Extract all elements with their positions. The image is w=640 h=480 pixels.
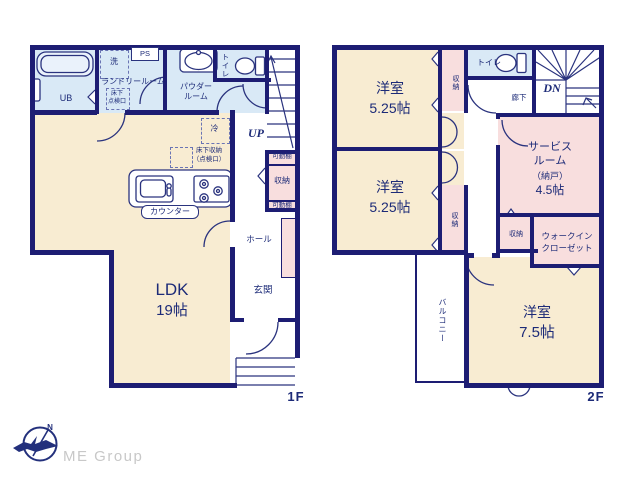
label-west3-size: 7.5帖	[487, 324, 587, 342]
label-west1-closet: 収納	[446, 67, 459, 99]
label-wic-l1: ウォークイン	[541, 231, 592, 241]
label-closet-small: 収納	[498, 231, 534, 239]
compass-north-label: N	[44, 423, 56, 433]
label-dn: DN	[540, 81, 564, 95]
label-toilet-2f: トイレ	[466, 58, 512, 68]
floorplan-canvas: PS UB ランドリールーム 洗 床下点検口 パウダールーム トイレ 冷 床下収…	[0, 0, 640, 480]
label-west2-size: 5.25帖	[340, 199, 440, 216]
label-service-l4: 4.5帖	[536, 183, 565, 197]
label-service-l1: サービス	[528, 141, 572, 153]
label-service-room: サービス ルーム （納戸） 4.5帖	[502, 140, 598, 198]
label-service-l3: （納戸）	[532, 171, 568, 181]
label-floor-2f: 2F	[580, 389, 612, 405]
label-west3-name: 洋室	[487, 304, 587, 321]
label-wic: ウォークインクローゼット	[532, 230, 602, 255]
label-west2-name: 洋室	[340, 179, 440, 196]
label-corridor: 廊下	[497, 93, 541, 102]
label-service-l2: ルーム	[534, 155, 567, 167]
labels-2f: 洋室 5.25帖 収納 トイレ DN 廊下 洋室 5.25帖 収納 サービス ル…	[0, 0, 640, 480]
label-west2-closet: 収納	[445, 204, 458, 236]
label-balcony: バルコニー	[433, 294, 447, 346]
label-west1-size: 5.25帖	[340, 100, 440, 117]
label-west1-name: 洋室	[340, 80, 440, 97]
label-wic-l2: クローゼット	[541, 243, 592, 253]
logo-text: ME Group	[63, 448, 143, 465]
